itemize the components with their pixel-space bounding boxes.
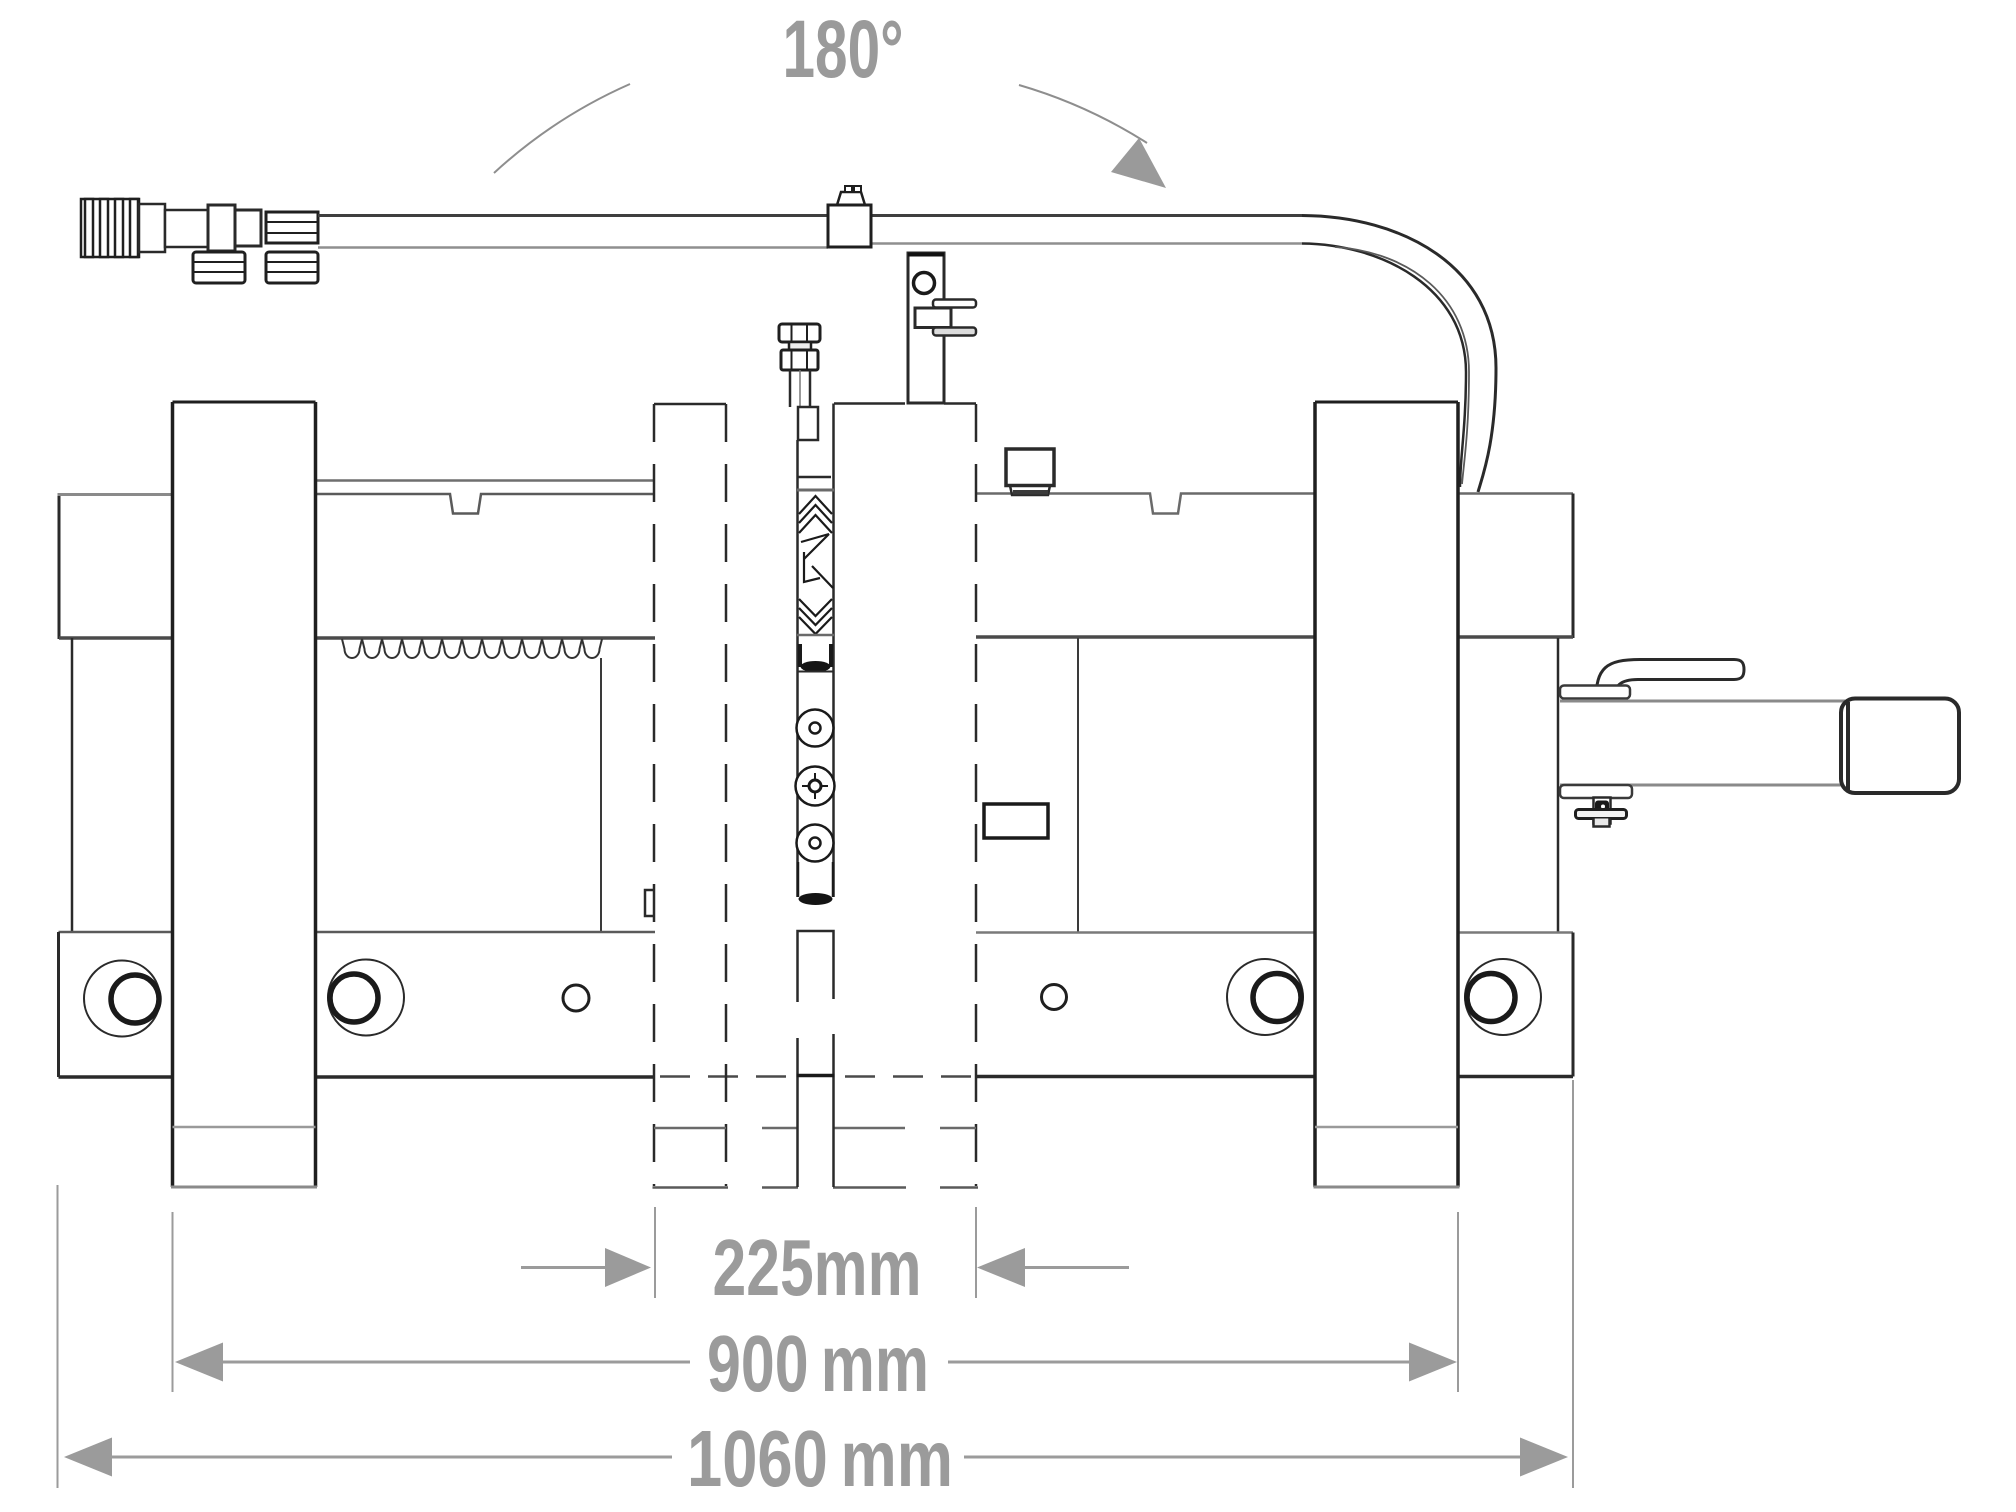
- svg-text:900 mm: 900 mm: [707, 1319, 929, 1408]
- svg-text:1060 mm: 1060 mm: [687, 1414, 953, 1503]
- svg-text:180°: 180°: [783, 4, 904, 95]
- svg-text:225mm: 225mm: [713, 1223, 922, 1312]
